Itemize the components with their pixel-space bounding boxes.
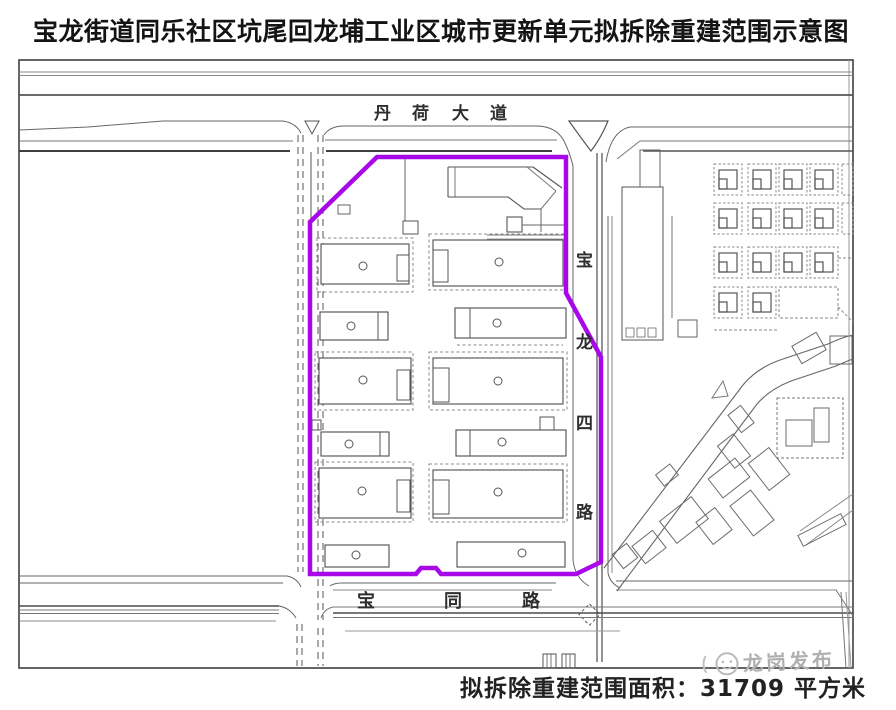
map-building: [433, 470, 563, 518]
map-building: [507, 217, 522, 232]
map-path: [508, 197, 541, 209]
map-building: [321, 244, 409, 284]
map-linework: [19, 60, 853, 668]
road-label-baolong-4th-road: 宝 龙 四 路: [575, 250, 594, 523]
map-building: [338, 205, 350, 214]
map-building: [612, 543, 637, 568]
map-line: [836, 590, 853, 616]
planned-block-building: [753, 302, 761, 312]
map-path: [305, 121, 319, 134]
map-building: [632, 530, 666, 563]
map-path: [569, 121, 608, 151]
planned-block-building: [815, 262, 823, 272]
planned-block-cell: [714, 164, 742, 195]
map-building: [728, 405, 754, 432]
planned-block-building: [719, 179, 727, 189]
planned-block-building: [753, 218, 761, 228]
map-path: [287, 576, 301, 587]
planned-block-building: [815, 218, 823, 228]
map-path: [330, 583, 556, 586]
planned-block-building: [719, 302, 727, 312]
planned-block-cell: [748, 164, 776, 195]
map-building: [637, 328, 645, 337]
planned-block-cell: [714, 287, 742, 318]
planned-block-building: [784, 262, 792, 272]
planned-block-cell: [748, 287, 776, 318]
planned-block-building: [753, 179, 761, 189]
map-line: [838, 307, 853, 322]
map-building: [748, 448, 789, 491]
map-path: [617, 359, 853, 591]
map-building: [786, 420, 812, 446]
road-label-danhe-avenue: 丹 荷 大 道: [374, 103, 507, 124]
road-label-char: 宝: [576, 250, 593, 271]
map-building: [792, 332, 826, 363]
road-label-char: 路: [522, 590, 541, 612]
page: 宝龙街道同乐社区坑尾回龙埔工业区城市更新单元拟拆除重建范围示意图 丹 荷 大 道…: [0, 0, 896, 710]
road-label-char: 荷: [412, 103, 429, 124]
site-map: 丹 荷 大 道 宝 龙 四 路 宝 同 路 龙岗发布: [0, 0, 896, 710]
map-building: [562, 654, 575, 668]
map-building: [433, 240, 563, 286]
map-path: [279, 606, 296, 618]
map-path: [712, 381, 728, 398]
map-building: [708, 458, 750, 498]
planned-block-building: [815, 179, 823, 189]
map-line: [541, 191, 556, 209]
map-building: [696, 508, 732, 545]
planned-block-cell: [842, 203, 853, 234]
planned-block-cell: [779, 203, 807, 234]
map-building: [777, 398, 843, 458]
watermark-logo-eye: [730, 660, 733, 663]
road-label-char: 龙: [575, 332, 593, 353]
map-building: [543, 654, 556, 668]
map-building: [325, 545, 389, 567]
map-line: [527, 167, 556, 191]
planned-block-cell: [810, 164, 838, 195]
map-building: [798, 514, 846, 546]
area-caption: 拟拆除重建范围面积：31709 平方米: [460, 669, 866, 703]
planned-block-building: [784, 179, 792, 189]
planned-block-building: [753, 262, 761, 272]
map-path: [19, 121, 301, 133]
planned-block-cell: [748, 247, 776, 278]
watermark-logo-eye: [722, 661, 725, 664]
planned-block-cell: [714, 203, 742, 234]
planned-block-building: [719, 262, 727, 272]
map-building: [648, 328, 656, 337]
map-building: [433, 358, 563, 404]
planned-block-building: [784, 218, 792, 228]
road-label-char: 丹: [374, 104, 391, 124]
map-building: [455, 308, 566, 338]
planned-block-cell: [748, 203, 776, 234]
map-path: [606, 127, 853, 162]
map-building: [779, 287, 838, 318]
map-building: [540, 417, 554, 431]
map-building: [622, 187, 663, 340]
map-building: [456, 430, 566, 456]
map-building: [312, 420, 321, 430]
planned-block-cell: [842, 164, 853, 195]
planned-block-cell: [779, 164, 807, 195]
road-label-char: 路: [576, 502, 594, 523]
planned-block-cell: [714, 247, 742, 278]
planned-block-building: [719, 218, 727, 228]
map-line: [533, 167, 562, 188]
map-building: [730, 490, 774, 536]
road-label-char: 道: [490, 103, 507, 124]
planned-block-cell: [810, 203, 838, 234]
road-label-char: 同: [444, 591, 462, 612]
road-label-char: 大: [452, 103, 469, 124]
planned-block-cell: [779, 247, 807, 278]
map-building: [678, 320, 697, 337]
map-building: [640, 150, 660, 187]
road-label-baotong-road: 宝 同 路: [357, 590, 541, 612]
planned-block-cell: [810, 247, 838, 278]
map-building: [403, 221, 418, 234]
map-building: [626, 328, 634, 337]
map-building: [660, 497, 709, 544]
map-building: [321, 432, 389, 456]
road-label-char: 四: [576, 414, 593, 434]
map-building: [457, 542, 565, 567]
map-building: [814, 408, 829, 442]
road-label-char: 宝: [357, 590, 375, 612]
